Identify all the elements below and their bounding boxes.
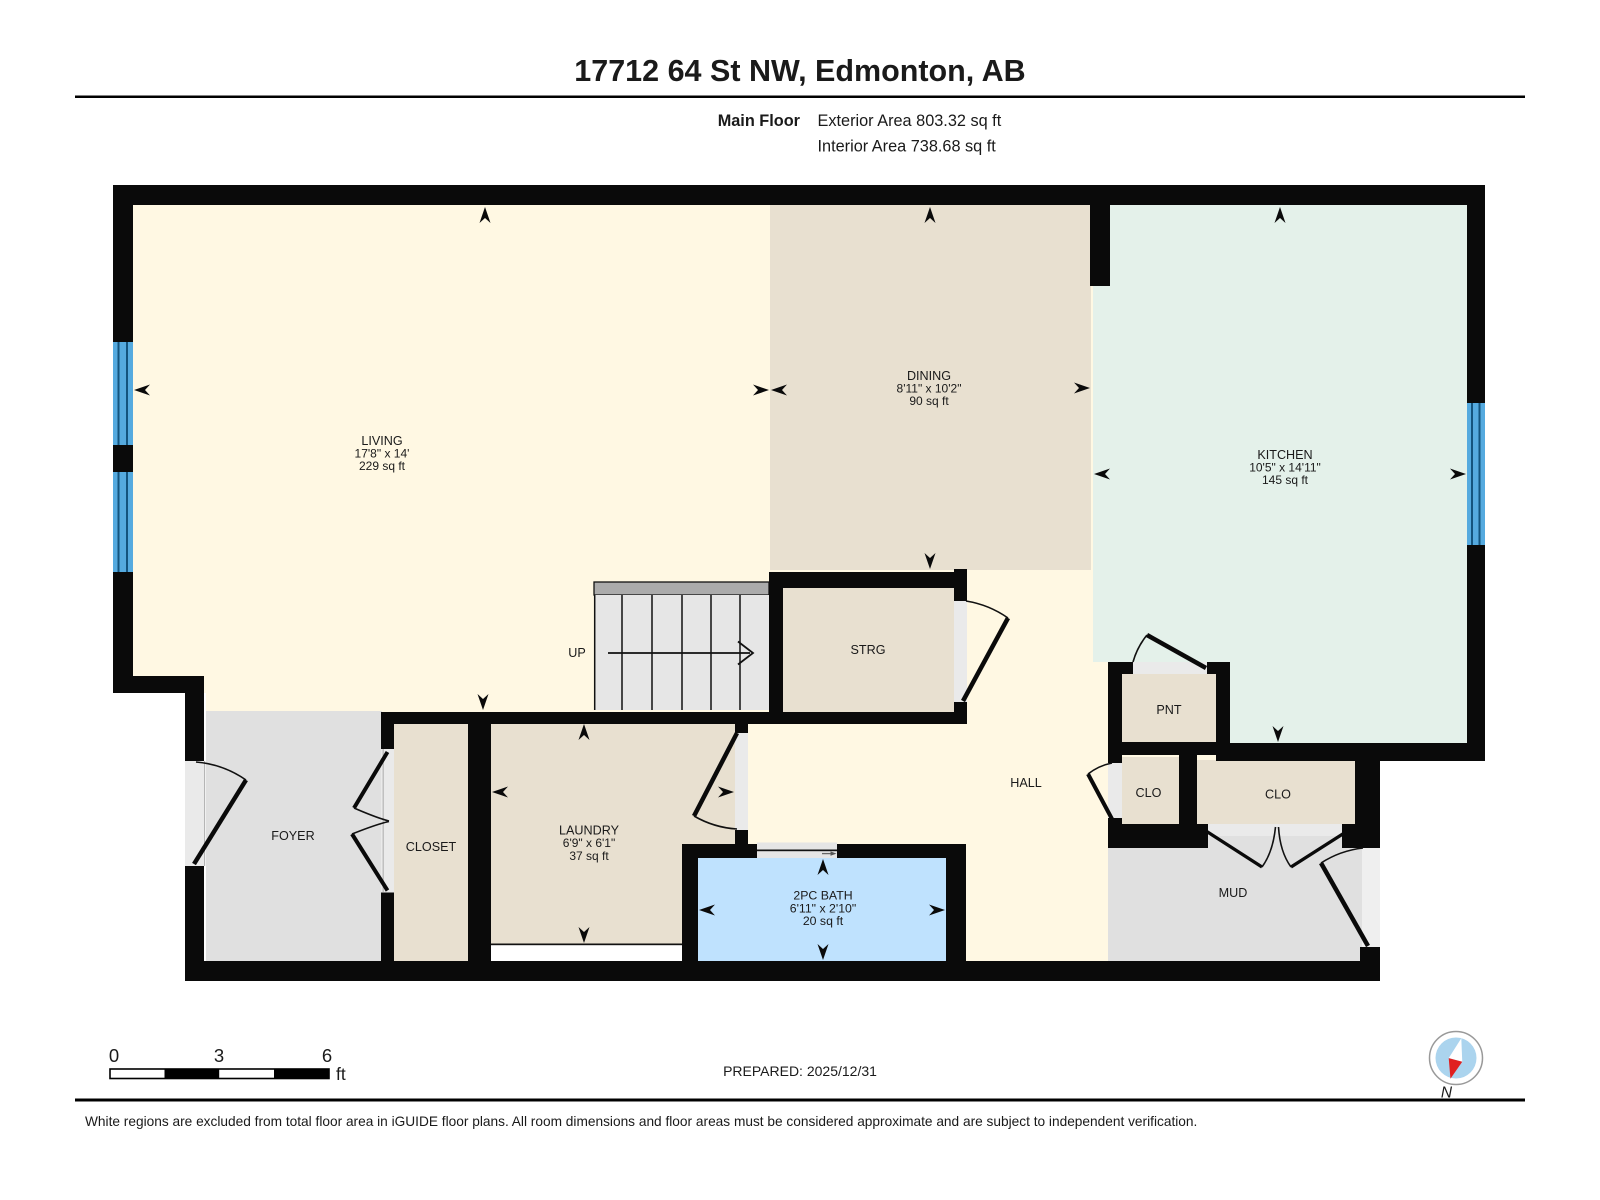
svg-text:FOYER: FOYER: [271, 829, 314, 843]
svg-text:0: 0: [109, 1045, 119, 1066]
svg-text:3: 3: [214, 1045, 224, 1066]
svg-text:White regions are excluded fro: White regions are excluded from total fl…: [85, 1114, 1197, 1129]
svg-text:Exterior Area 803.32 sq ft: Exterior Area 803.32 sq ft: [818, 112, 1002, 130]
svg-text:UP: UP: [568, 646, 586, 660]
svg-text:PREPARED: 2025/12/31: PREPARED: 2025/12/31: [723, 1063, 877, 1079]
svg-text:PNT: PNT: [1156, 703, 1181, 717]
svg-text:6: 6: [322, 1045, 332, 1066]
svg-text:STRG: STRG: [851, 643, 886, 657]
svg-text:Main Floor: Main Floor: [718, 112, 801, 130]
svg-text:CLOSET: CLOSET: [406, 840, 457, 854]
svg-text:MUD: MUD: [1219, 886, 1248, 900]
svg-text:37 sq ft: 37 sq ft: [569, 849, 609, 863]
svg-text:17712 64 St NW, Edmonton, AB: 17712 64 St NW, Edmonton, AB: [574, 54, 1025, 88]
svg-text:CLO: CLO: [1136, 786, 1162, 800]
svg-text:ft: ft: [336, 1064, 346, 1084]
svg-text:Interior Area 738.68 sq ft: Interior Area 738.68 sq ft: [818, 138, 997, 156]
svg-text:145 sq ft: 145 sq ft: [1262, 473, 1309, 487]
svg-text:HALL: HALL: [1010, 776, 1042, 790]
svg-text:90 sq ft: 90 sq ft: [909, 394, 949, 408]
svg-text:CLO: CLO: [1265, 788, 1291, 802]
svg-text:20 sq ft: 20 sq ft: [803, 914, 844, 928]
svg-text:229 sq ft: 229 sq ft: [359, 459, 406, 473]
